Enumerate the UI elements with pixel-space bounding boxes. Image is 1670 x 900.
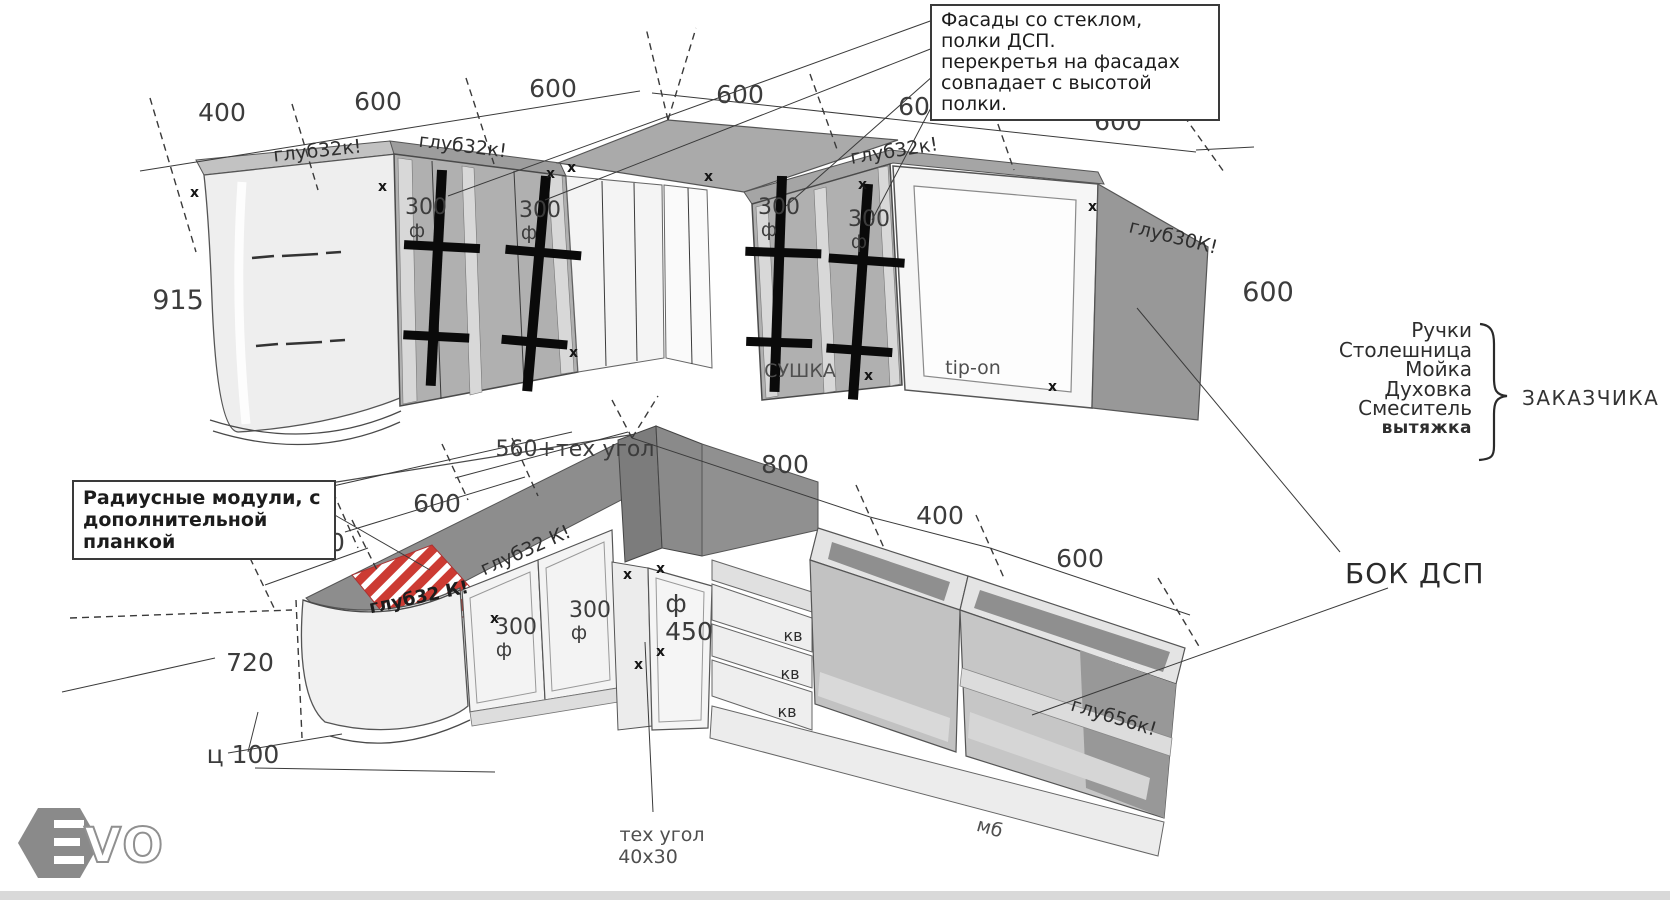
x-marker: х xyxy=(546,166,555,182)
door-450: 450 xyxy=(665,617,713,646)
x-marker: х xyxy=(1048,379,1057,395)
bottom-edge-bar xyxy=(0,891,1670,900)
drawer-kv-1: кв xyxy=(783,626,802,645)
x-marker: х xyxy=(704,169,713,185)
dim-top-600-2: 600 xyxy=(529,74,577,103)
dim-lower-400: 400 xyxy=(916,501,964,530)
upper-cabinets xyxy=(196,120,1208,445)
door-flag-4: ф xyxy=(851,231,867,253)
x-marker: х xyxy=(1088,199,1097,215)
tipon-label: tip-on xyxy=(945,357,1001,379)
upper-curved-cabinet xyxy=(196,141,401,445)
door-300-4: 300 xyxy=(848,207,890,232)
x-marker: х xyxy=(569,345,578,361)
door-flag-6: ф xyxy=(571,622,587,644)
door-flag-5: ф xyxy=(496,639,512,661)
sushka-label: СУШКА xyxy=(764,360,836,382)
customer-item: вытяжка xyxy=(1292,419,1472,439)
x-marker: х xyxy=(190,185,199,201)
customer-items-list: Ручки Столешница Мойка Духовка Смеситель… xyxy=(1292,321,1472,439)
customer-item: Смеситель xyxy=(1292,399,1472,419)
customer-label: ЗАКАЗЧИКА xyxy=(1522,386,1659,410)
x-marker: х xyxy=(378,179,387,195)
lower-open-cabinet-400 xyxy=(810,528,968,752)
door-300-5: 300 xyxy=(495,615,537,640)
dim-top-600-1: 600 xyxy=(354,87,402,116)
dim-lower-800: 800 xyxy=(761,450,809,479)
x-marker: х xyxy=(490,611,499,627)
radius-modules-note: Радиусные модули, с дополнительной планк… xyxy=(72,480,336,560)
bok-dsp-label: БОК ДСП xyxy=(1345,557,1485,590)
evo-logo-text: VO xyxy=(84,818,165,874)
drawer-kv-2: кв xyxy=(780,664,799,683)
evo-logo: VO xyxy=(18,808,165,878)
x-marker: х xyxy=(656,561,665,577)
drawing-svg: 400 600 600 600 600 600 915 600 560+тех … xyxy=(0,0,1670,900)
drawer-kv-3: кв xyxy=(777,702,796,721)
tech-corner-line1: тех угол xyxy=(619,824,704,846)
x-marker: х xyxy=(567,160,576,176)
x-marker: х xyxy=(864,368,873,384)
mb-label: мб xyxy=(974,814,1005,842)
x-marker: х xyxy=(634,657,643,673)
door-flag-1: ф xyxy=(409,220,425,242)
door-450-flag: ф xyxy=(665,589,686,618)
dim-lower-600: 600 xyxy=(1056,544,1104,573)
dim-top-600-3: 600 xyxy=(716,80,764,109)
dim-height-600: 600 xyxy=(1242,277,1294,308)
x-marker: х xyxy=(623,567,632,583)
door-300-6: 300 xyxy=(569,598,611,623)
x-marker: х xyxy=(656,644,665,660)
customer-brace xyxy=(1479,324,1507,460)
door-300-2: 300 xyxy=(519,198,561,223)
kitchen-drawing-canvas: 400 600 600 600 600 600 915 600 560+тех … xyxy=(0,0,1670,900)
dim-plinth-100: ц 100 xyxy=(207,740,280,769)
tech-corner-line2: 40х30 xyxy=(618,846,678,868)
glass-fronts-note: Фасады со стеклом, полки ДСП. перекретья… xyxy=(930,4,1220,121)
dim-top-400: 400 xyxy=(198,98,246,127)
dim-height-915: 915 xyxy=(152,285,204,316)
lower-drawer-unit xyxy=(702,444,818,730)
dim-560-tech: 560+тех угол xyxy=(496,437,655,462)
door-flag-3: ф xyxy=(761,219,777,241)
x-marker: х xyxy=(858,177,867,193)
door-300-1: 300 xyxy=(405,195,447,220)
dim-lower-600-left: 600 xyxy=(413,489,461,518)
door-flag-2: ф xyxy=(521,222,537,244)
dim-height-720: 720 xyxy=(226,648,274,677)
door-300-3: 300 xyxy=(758,195,800,220)
